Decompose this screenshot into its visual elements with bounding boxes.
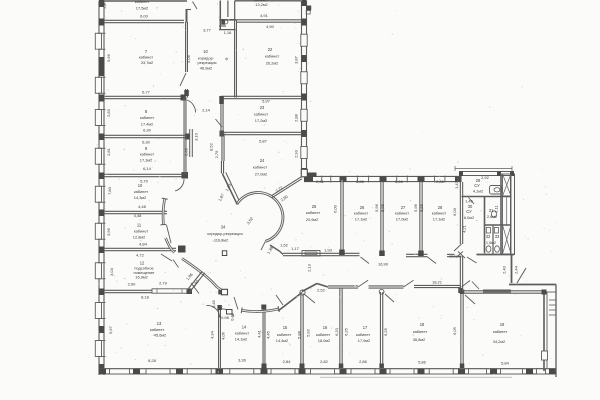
svg-text:4,48: 4,48 bbox=[138, 204, 147, 209]
svg-text:26: 26 bbox=[360, 205, 365, 210]
svg-text:8,28: 8,28 bbox=[148, 358, 157, 363]
svg-text:2,91: 2,91 bbox=[316, 179, 325, 184]
svg-text:0,45: 0,45 bbox=[211, 299, 216, 308]
svg-text:1,45: 1,45 bbox=[465, 199, 474, 204]
svg-text:5,06: 5,06 bbox=[186, 54, 191, 63]
svg-text:24: 24 bbox=[260, 158, 265, 163]
svg-text:45,6м2: 45,6м2 bbox=[154, 333, 166, 338]
svg-text:2,88: 2,88 bbox=[294, 113, 299, 122]
svg-text:16,90: 16,90 bbox=[378, 262, 389, 267]
svg-text:5,96: 5,96 bbox=[374, 203, 379, 212]
svg-text:28: 28 bbox=[438, 205, 443, 210]
svg-text:кабинет: кабинет bbox=[235, 331, 250, 336]
svg-text:0,98: 0,98 bbox=[221, 315, 230, 320]
svg-text:46,9м2: 46,9м2 bbox=[200, 65, 212, 70]
svg-text:34,2м2: 34,2м2 bbox=[493, 339, 505, 344]
svg-text:2,66: 2,66 bbox=[184, 147, 189, 156]
svg-text:3,96: 3,96 bbox=[106, 227, 111, 236]
svg-text:4,41: 4,41 bbox=[257, 329, 262, 338]
svg-text:10: 10 bbox=[203, 49, 208, 54]
svg-text:кабинет: кабинет bbox=[254, 112, 269, 117]
svg-text:34: 34 bbox=[221, 225, 226, 230]
svg-text:4,34: 4,34 bbox=[210, 330, 215, 339]
svg-text:кабинет: кабинет bbox=[432, 211, 447, 216]
svg-text:4,1м2: 4,1м2 bbox=[473, 189, 483, 194]
svg-text:17,4м2: 17,4м2 bbox=[141, 122, 153, 127]
svg-text:26,2м2: 26,2м2 bbox=[266, 61, 278, 66]
svg-text:кабинет: кабинет bbox=[140, 152, 155, 157]
svg-text:7,80: 7,80 bbox=[107, 186, 112, 195]
svg-text:6,30: 6,30 bbox=[142, 140, 151, 145]
svg-text:2,66: 2,66 bbox=[395, 179, 404, 184]
svg-text:кабинет: кабинет bbox=[356, 332, 371, 337]
svg-text:2,52: 2,52 bbox=[317, 288, 326, 293]
svg-text:2,8: 2,8 bbox=[102, 2, 107, 8]
svg-text:4,84: 4,84 bbox=[139, 242, 148, 247]
svg-text:2,11: 2,11 bbox=[494, 204, 499, 212]
svg-text:кабинет: кабинет bbox=[354, 211, 369, 216]
svg-text:кабинет: кабинет bbox=[316, 332, 331, 337]
svg-text:23: 23 bbox=[260, 105, 265, 110]
svg-text:5,86: 5,86 bbox=[418, 359, 427, 364]
svg-text:18: 18 bbox=[420, 322, 425, 327]
svg-text:6,0м2: 6,0м2 bbox=[464, 215, 474, 220]
svg-text:14,3м2: 14,3м2 bbox=[134, 195, 146, 200]
svg-text:1,5м2: 1,5м2 bbox=[486, 240, 496, 245]
svg-text:2,6м2: 2,6м2 bbox=[487, 214, 497, 219]
svg-text:2,40: 2,40 bbox=[502, 265, 507, 274]
svg-text:11: 11 bbox=[137, 223, 142, 228]
svg-text:2,86: 2,86 bbox=[436, 179, 445, 184]
svg-text:кабинет: кабинет bbox=[306, 210, 321, 215]
svg-text:17: 17 bbox=[363, 325, 368, 330]
svg-text:кабинет: кабинет bbox=[139, 55, 154, 60]
svg-text:116,8м2: 116,8м2 bbox=[214, 238, 228, 243]
svg-text:кабинет: кабинет bbox=[140, 115, 155, 120]
svg-text:17,1м2: 17,1м2 bbox=[355, 217, 367, 222]
svg-text:2,93: 2,93 bbox=[294, 149, 299, 158]
svg-text:кабинет: кабинет bbox=[413, 329, 428, 334]
svg-text:27: 27 bbox=[401, 205, 406, 210]
svg-text:3,04: 3,04 bbox=[109, 267, 114, 276]
svg-text:17,9м2: 17,9м2 bbox=[358, 338, 370, 343]
svg-text:6,30: 6,30 bbox=[143, 128, 152, 133]
svg-text:33,7м2: 33,7м2 bbox=[141, 60, 153, 65]
svg-text:12,8м2: 12,8м2 bbox=[133, 235, 145, 240]
svg-text:27,0м2: 27,0м2 bbox=[255, 172, 267, 177]
svg-text:Ф: Ф bbox=[224, 57, 229, 60]
svg-text:2,83: 2,83 bbox=[106, 108, 111, 117]
svg-text:4,72: 4,72 bbox=[136, 253, 145, 258]
svg-text:4,06: 4,06 bbox=[221, 331, 226, 340]
svg-text:14,1м2: 14,1м2 bbox=[235, 337, 247, 342]
svg-text:2,14: 2,14 bbox=[202, 108, 211, 113]
svg-text:16,9м2: 16,9м2 bbox=[135, 275, 147, 280]
svg-text:6,03: 6,03 bbox=[452, 207, 457, 216]
svg-text:14: 14 bbox=[242, 325, 247, 330]
svg-text:3,87: 3,87 bbox=[294, 55, 299, 64]
svg-text:17,5м2: 17,5м2 bbox=[136, 5, 148, 10]
svg-text:1,93: 1,93 bbox=[324, 248, 333, 253]
svg-text:2,86: 2,86 bbox=[356, 179, 365, 184]
svg-text:6,00: 6,00 bbox=[333, 204, 338, 213]
svg-text:5,96: 5,96 bbox=[380, 203, 385, 212]
svg-text:25: 25 bbox=[312, 204, 317, 209]
svg-text:22: 22 bbox=[268, 47, 273, 52]
svg-text:19: 19 bbox=[500, 322, 505, 327]
svg-text:5,67: 5,67 bbox=[108, 325, 113, 334]
svg-text:кабинет: кабинет bbox=[134, 189, 149, 194]
svg-text:кабинет: кабинет bbox=[395, 211, 410, 216]
svg-text:5,87: 5,87 bbox=[259, 139, 268, 144]
svg-text:5,97: 5,97 bbox=[262, 99, 271, 104]
svg-text:кабинет: кабинет bbox=[253, 165, 268, 170]
svg-text:33: 33 bbox=[495, 234, 500, 239]
svg-text:кабинет: кабинет bbox=[134, 229, 149, 234]
svg-text:6,77: 6,77 bbox=[142, 90, 151, 95]
svg-text:3,77: 3,77 bbox=[203, 28, 212, 33]
svg-text:32: 32 bbox=[486, 234, 491, 239]
svg-text:1,52: 1,52 bbox=[280, 243, 289, 248]
svg-text:6,06: 6,06 bbox=[452, 326, 457, 335]
svg-text:1,16: 1,16 bbox=[224, 30, 233, 35]
svg-text:2,92: 2,92 bbox=[481, 175, 490, 180]
svg-text:2,81: 2,81 bbox=[106, 147, 111, 156]
svg-text:36,8м2: 36,8м2 bbox=[413, 337, 425, 342]
svg-text:16: 16 bbox=[323, 325, 328, 330]
svg-text:5,88: 5,88 bbox=[297, 330, 302, 339]
svg-text:1,47: 1,47 bbox=[454, 180, 459, 189]
svg-text:4,91: 4,91 bbox=[260, 13, 269, 18]
svg-text:13,2м2: 13,2м2 bbox=[255, 2, 267, 7]
svg-text:5,98: 5,98 bbox=[419, 203, 424, 212]
svg-text:5,70: 5,70 bbox=[140, 179, 149, 184]
svg-text:6,25: 6,25 bbox=[383, 327, 388, 336]
svg-text:18,21: 18,21 bbox=[432, 280, 443, 285]
svg-text:3,36: 3,36 bbox=[238, 358, 247, 363]
svg-text:рекреация: рекреация bbox=[197, 60, 216, 65]
svg-text:3,10: 3,10 bbox=[194, 132, 199, 141]
svg-text:кабинет: кабинет bbox=[265, 54, 280, 59]
svg-text:2,44: 2,44 bbox=[514, 265, 519, 274]
svg-text:6,25: 6,25 bbox=[344, 327, 349, 336]
svg-text:1,17: 1,17 bbox=[291, 246, 300, 251]
svg-text:5,96: 5,96 bbox=[413, 203, 418, 212]
svg-text:2,84: 2,84 bbox=[283, 359, 292, 364]
svg-text:4,45: 4,45 bbox=[266, 330, 271, 339]
svg-text:6,14: 6,14 bbox=[143, 166, 152, 171]
svg-text:5,92: 5,92 bbox=[306, 328, 311, 337]
svg-text:СУ: СУ bbox=[466, 209, 472, 214]
svg-text:СУ: СУ bbox=[474, 183, 480, 188]
svg-text:20,9м2: 20,9м2 bbox=[306, 217, 318, 222]
svg-text:6,00: 6,00 bbox=[140, 14, 149, 19]
svg-text:15: 15 bbox=[283, 325, 288, 330]
svg-text:10: 10 bbox=[138, 183, 143, 188]
svg-text:кабинет: кабинет bbox=[150, 327, 165, 332]
svg-text:4,90: 4,90 bbox=[266, 24, 275, 29]
svg-text:17,0м2: 17,0м2 bbox=[396, 217, 408, 222]
svg-text:2,86: 2,86 bbox=[359, 359, 368, 364]
svg-text:2,79: 2,79 bbox=[214, 150, 219, 159]
svg-text:17,2м2: 17,2м2 bbox=[255, 118, 267, 123]
svg-text:коридор-рекреация: коридор-рекреация bbox=[207, 231, 242, 236]
svg-text:2,90: 2,90 bbox=[128, 282, 137, 287]
svg-text:кабинет: кабинет bbox=[135, 0, 150, 4]
svg-text:5,66: 5,66 bbox=[106, 53, 111, 62]
svg-text:2,13: 2,13 bbox=[307, 263, 312, 272]
svg-text:8,52: 8,52 bbox=[209, 142, 214, 151]
svg-text:кабинет: кабинет bbox=[493, 329, 508, 334]
svg-text:0,40: 0,40 bbox=[230, 312, 235, 321]
svg-text:2,82: 2,82 bbox=[320, 359, 329, 364]
svg-text:4,21: 4,21 bbox=[462, 224, 467, 233]
svg-text:14,4м2: 14,4м2 bbox=[276, 338, 288, 343]
svg-text:8,18: 8,18 bbox=[141, 295, 150, 300]
svg-text:кабинет: кабинет bbox=[277, 332, 292, 337]
svg-text:4,48: 4,48 bbox=[134, 213, 143, 218]
svg-text:2,79: 2,79 bbox=[159, 281, 168, 286]
svg-text:13: 13 bbox=[157, 321, 162, 326]
svg-text:5,84: 5,84 bbox=[501, 360, 510, 365]
svg-text:17,1м2: 17,1м2 bbox=[433, 217, 445, 222]
